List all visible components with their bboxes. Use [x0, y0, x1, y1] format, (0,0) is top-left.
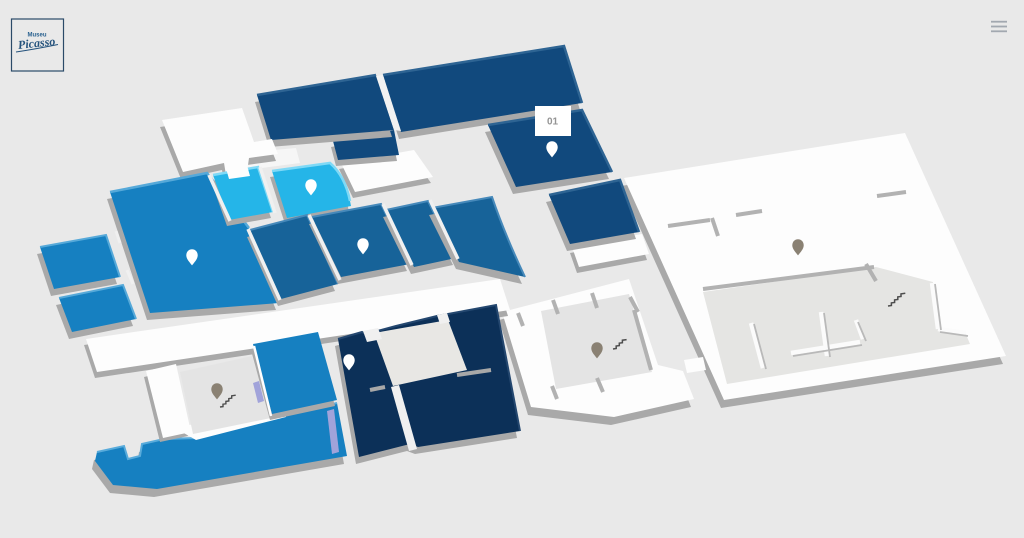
svg-text:01: 01 — [547, 117, 559, 128]
